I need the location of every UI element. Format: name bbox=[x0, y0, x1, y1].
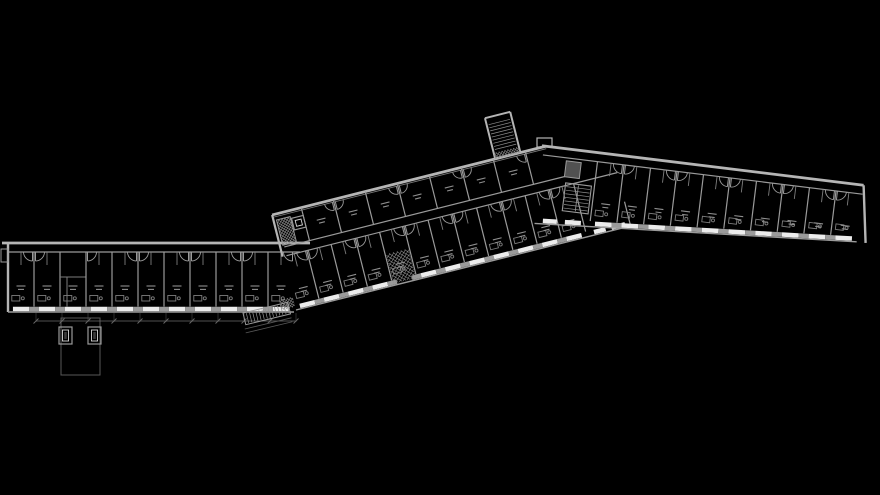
stair-tread bbox=[492, 132, 513, 137]
sink-symbol bbox=[648, 213, 657, 219]
elevator-shaft bbox=[564, 161, 581, 179]
door-leaf bbox=[833, 191, 834, 200]
room-label-mark bbox=[383, 206, 389, 207]
room-label-mark bbox=[413, 194, 422, 196]
bathroom-stub bbox=[769, 183, 771, 196]
toilet-symbol bbox=[305, 291, 309, 295]
stair-tread bbox=[253, 312, 255, 322]
room-label-mark bbox=[299, 286, 308, 288]
room-label-mark bbox=[682, 214, 688, 215]
sink-symbol bbox=[272, 296, 280, 302]
inner-wall-line bbox=[273, 149, 547, 218]
wall-stub bbox=[718, 230, 728, 232]
toilet-symbol bbox=[99, 297, 102, 300]
toilet-symbol bbox=[658, 216, 661, 219]
exterior-wall-edge bbox=[534, 220, 589, 230]
room-label-mark bbox=[477, 178, 486, 180]
toilet-symbol bbox=[475, 249, 479, 253]
sink-symbol bbox=[64, 296, 72, 302]
bathroom-stub bbox=[343, 242, 346, 255]
stair-tread bbox=[494, 141, 515, 146]
stair-tread bbox=[495, 144, 516, 149]
door-leaf bbox=[677, 172, 678, 181]
door-arc bbox=[232, 252, 241, 261]
room-label-mark bbox=[541, 226, 550, 228]
stair-tread bbox=[493, 135, 514, 140]
bathroom-stub bbox=[319, 247, 322, 260]
room-label-mark bbox=[789, 224, 795, 225]
wall-stub bbox=[533, 245, 542, 247]
room-label-mark bbox=[815, 226, 821, 227]
toilet-symbol bbox=[229, 297, 232, 300]
toilet-symbol bbox=[378, 273, 382, 277]
bathroom-stub bbox=[416, 223, 419, 236]
window-sill bbox=[702, 229, 719, 232]
site-elements bbox=[1, 138, 552, 375]
window-sill bbox=[622, 224, 639, 227]
stair-tower-wall bbox=[485, 112, 510, 118]
bathroom-stub bbox=[822, 189, 824, 202]
window-sill bbox=[809, 235, 826, 238]
room-label-mark bbox=[444, 250, 453, 252]
sink-symbol bbox=[675, 215, 684, 221]
toilet-symbol bbox=[631, 214, 634, 217]
room-label-mark bbox=[628, 206, 637, 207]
room-label-mark bbox=[479, 182, 485, 183]
sink-symbol bbox=[12, 296, 20, 302]
floor-plan-svg bbox=[0, 0, 880, 495]
wall-stub bbox=[460, 263, 469, 265]
toilet-symbol bbox=[547, 230, 551, 234]
toilet-symbol bbox=[353, 279, 357, 283]
bathroom-stub bbox=[513, 199, 516, 212]
room-divider bbox=[380, 232, 392, 280]
toilet-symbol bbox=[426, 261, 430, 265]
room-label-mark bbox=[319, 222, 325, 223]
sink-symbol bbox=[246, 296, 254, 302]
window-sill bbox=[594, 229, 606, 232]
door-arc bbox=[88, 252, 97, 261]
toilet-symbol bbox=[125, 297, 128, 300]
window-sill bbox=[543, 220, 557, 223]
wall-stub bbox=[745, 232, 755, 234]
sink-symbol bbox=[295, 291, 304, 298]
room-label-mark bbox=[681, 211, 690, 212]
wing-east bbox=[533, 146, 873, 264]
wall-stub bbox=[825, 236, 835, 238]
toilet-symbol bbox=[711, 219, 714, 222]
wall-stub bbox=[363, 288, 372, 290]
floor-plan-canvas bbox=[0, 0, 880, 495]
elevator-car bbox=[295, 219, 302, 226]
sink-symbol bbox=[168, 296, 176, 302]
window-sill bbox=[675, 227, 692, 230]
bathroom-stub bbox=[741, 179, 743, 192]
stair-tread bbox=[490, 126, 511, 131]
room-divider bbox=[697, 175, 703, 228]
wall-stub bbox=[692, 229, 702, 231]
sink-symbol bbox=[344, 279, 353, 286]
room-divider bbox=[525, 151, 533, 184]
room-divider bbox=[644, 168, 651, 224]
room-divider bbox=[331, 244, 343, 292]
room-label-mark bbox=[517, 232, 526, 234]
room-label-mark bbox=[708, 213, 717, 214]
outer-wall-north bbox=[272, 146, 546, 215]
room-divider bbox=[428, 220, 440, 268]
exterior-stair bbox=[240, 297, 298, 333]
room-label-mark bbox=[347, 274, 356, 276]
shaft-box-core bbox=[93, 332, 96, 339]
wing-west bbox=[2, 243, 310, 312]
room-label-mark bbox=[445, 186, 454, 188]
bathroom-stub bbox=[440, 217, 443, 230]
room-label-mark bbox=[349, 210, 358, 212]
wall-stub bbox=[772, 233, 782, 235]
door-arc bbox=[24, 252, 33, 261]
bathroom-stub bbox=[465, 211, 468, 224]
stair-tread bbox=[491, 129, 512, 134]
wall-stub bbox=[612, 224, 622, 226]
bathroom-stub bbox=[391, 229, 394, 242]
door-leaf bbox=[624, 165, 625, 174]
sink-symbol bbox=[489, 242, 498, 249]
window-sill bbox=[565, 221, 581, 224]
stair-tread bbox=[493, 138, 514, 143]
toilet-symbol bbox=[151, 297, 154, 300]
window-sill bbox=[595, 223, 612, 226]
room-label-mark bbox=[509, 170, 518, 172]
sink-symbol bbox=[38, 296, 46, 302]
room-label-mark bbox=[381, 202, 390, 204]
wall-stub bbox=[315, 300, 324, 302]
sink-symbol bbox=[538, 230, 547, 237]
room-label-mark bbox=[415, 198, 421, 199]
wall-stub bbox=[665, 227, 675, 229]
room-label-mark bbox=[761, 218, 770, 219]
sink-symbol bbox=[90, 296, 98, 302]
toilet-symbol bbox=[604, 213, 607, 216]
sink-symbol bbox=[514, 236, 523, 243]
room-label-mark bbox=[511, 173, 517, 174]
sink-symbol bbox=[755, 219, 764, 225]
room-label-mark bbox=[493, 238, 502, 240]
bathroom-stub bbox=[794, 186, 796, 199]
toilet-symbol bbox=[73, 297, 76, 300]
room-label-mark bbox=[842, 229, 848, 230]
toilet-symbol bbox=[47, 297, 50, 300]
corridor-wall bbox=[284, 174, 576, 247]
room-label-mark bbox=[735, 219, 741, 220]
door-leaf bbox=[621, 165, 622, 174]
wing-center bbox=[262, 90, 631, 310]
room-label-mark bbox=[762, 222, 768, 223]
room-label-mark bbox=[447, 190, 453, 191]
wall-stub bbox=[638, 226, 648, 228]
sink-symbol bbox=[368, 273, 377, 280]
door-arc bbox=[284, 252, 293, 261]
wall-stub bbox=[436, 269, 445, 271]
room-label-mark bbox=[351, 214, 357, 215]
wall-stub bbox=[799, 235, 809, 237]
door-arc bbox=[180, 252, 189, 261]
window-sill bbox=[835, 237, 852, 240]
toilet-symbol bbox=[177, 297, 180, 300]
sink-symbol bbox=[595, 210, 604, 216]
toilet-symbol bbox=[203, 297, 206, 300]
bathroom-stub bbox=[368, 235, 371, 248]
sink-symbol bbox=[465, 249, 474, 256]
room-label-mark bbox=[656, 212, 662, 213]
sink-symbol bbox=[441, 255, 450, 262]
room-label-mark bbox=[420, 256, 429, 258]
door-leaf bbox=[730, 178, 731, 187]
toilet-symbol bbox=[523, 237, 527, 241]
stair-tread bbox=[489, 119, 510, 124]
room-divider bbox=[461, 167, 469, 200]
toilet-symbol bbox=[499, 243, 503, 247]
room-label-mark bbox=[372, 268, 381, 270]
room-label-mark bbox=[629, 210, 635, 211]
room-label-mark bbox=[469, 244, 478, 246]
room-label-mark bbox=[317, 218, 326, 220]
wall-stub bbox=[509, 251, 518, 253]
bathroom-stub bbox=[488, 205, 491, 218]
room-label-mark bbox=[601, 204, 610, 205]
sink-symbol bbox=[194, 296, 202, 302]
room-label-mark bbox=[814, 223, 823, 224]
door-arc bbox=[244, 252, 253, 261]
door-arc bbox=[128, 252, 137, 261]
room-divider bbox=[493, 159, 501, 192]
door-arc bbox=[192, 252, 201, 261]
room-divider bbox=[365, 192, 373, 225]
sink-symbol bbox=[320, 285, 329, 292]
exterior-wall-edge bbox=[296, 226, 631, 310]
wall-stub bbox=[557, 239, 566, 241]
bathroom-stub bbox=[688, 173, 690, 186]
room-label-mark bbox=[654, 208, 663, 209]
toilet-symbol bbox=[255, 297, 258, 300]
toilet-symbol bbox=[21, 297, 24, 300]
door-leaf bbox=[674, 171, 675, 180]
stair-tread bbox=[246, 313, 248, 323]
room-label-mark bbox=[709, 217, 715, 218]
room-divider bbox=[477, 208, 489, 256]
door-leaf bbox=[780, 184, 781, 193]
toilet-symbol bbox=[329, 285, 333, 289]
window-sill bbox=[729, 230, 746, 233]
door-arc bbox=[36, 252, 45, 261]
room-label-mark bbox=[734, 216, 743, 217]
bathroom-stub bbox=[537, 193, 540, 206]
toilet-symbol bbox=[738, 220, 741, 223]
room-label-mark bbox=[602, 207, 608, 208]
bathroom-stub bbox=[294, 254, 297, 267]
door-leaf bbox=[836, 191, 837, 200]
sink-symbol bbox=[116, 296, 124, 302]
sink-symbol bbox=[142, 296, 150, 302]
door-leaf bbox=[727, 178, 728, 187]
toilet-symbol bbox=[685, 217, 688, 220]
bathroom-stub bbox=[635, 166, 637, 179]
elevator-shaft bbox=[292, 215, 307, 230]
room-divider bbox=[333, 200, 341, 233]
wall-stub bbox=[412, 275, 421, 277]
bathroom-stub bbox=[847, 193, 849, 206]
window-sill bbox=[648, 226, 665, 229]
window-sill bbox=[755, 232, 772, 235]
toilet-symbol bbox=[450, 255, 454, 259]
window-sill bbox=[782, 233, 799, 236]
stair-tread bbox=[489, 122, 510, 127]
bathroom-stub bbox=[716, 176, 718, 189]
room-divider bbox=[397, 184, 405, 217]
room-label-mark bbox=[323, 280, 332, 282]
bathroom-stub bbox=[663, 170, 665, 183]
sink-symbol bbox=[220, 296, 228, 302]
room-divider bbox=[429, 175, 437, 208]
room-label-mark bbox=[841, 225, 850, 226]
shaft-box-core bbox=[64, 332, 67, 339]
door-leaf bbox=[783, 185, 784, 194]
door-arc bbox=[140, 252, 149, 261]
sink-symbol bbox=[417, 261, 426, 268]
room-divider bbox=[525, 196, 537, 244]
wall-stub bbox=[339, 294, 348, 296]
wall-stub bbox=[485, 257, 494, 259]
